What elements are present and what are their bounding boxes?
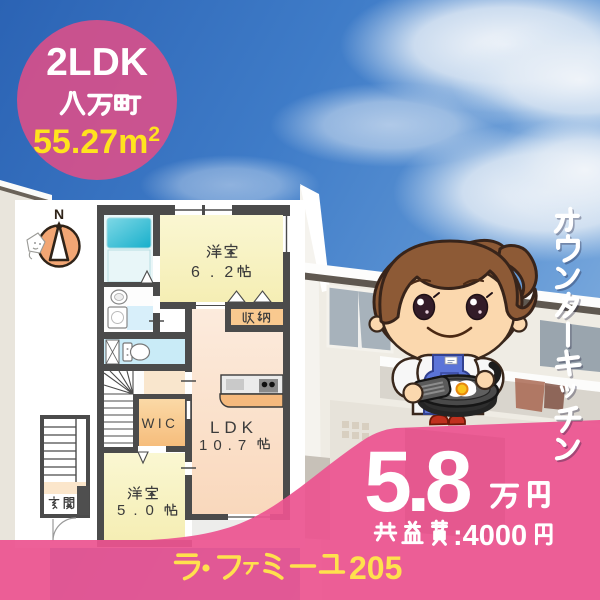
svg-text::4000: :4000 — [453, 520, 527, 552]
svg-text:WIC: WIC — [142, 416, 179, 431]
svg-text:5.0: 5.0 — [117, 502, 162, 519]
svg-text:6.2: 6.2 — [191, 264, 243, 281]
svg-text:55.27m2: 55.27m2 — [33, 123, 160, 161]
svg-text:N: N — [54, 206, 64, 222]
svg-text:10.7: 10.7 — [199, 437, 252, 454]
svg-text:2LDK: 2LDK — [46, 41, 148, 84]
svg-text:205: 205 — [349, 550, 402, 586]
svg-text:5.8: 5.8 — [364, 434, 471, 530]
svg-text:LDK: LDK — [210, 418, 258, 437]
